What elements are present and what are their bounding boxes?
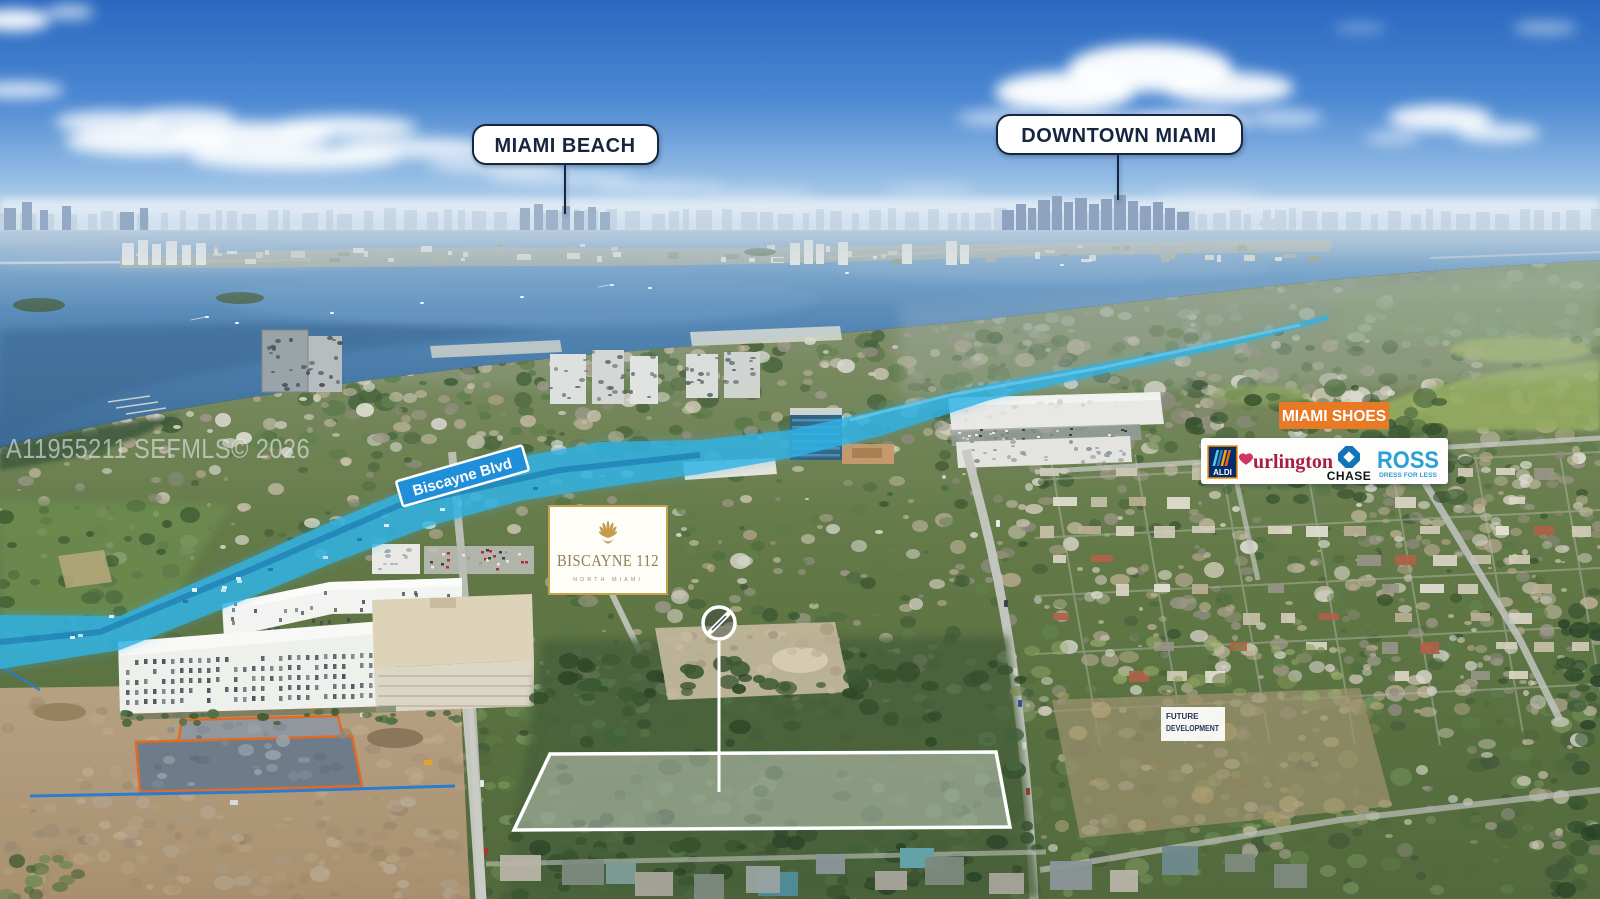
svg-text:A11955211 SEFMLS© 2026: A11955211 SEFMLS© 2026 — [6, 433, 310, 464]
svg-text:DRESS FOR LESS: DRESS FOR LESS — [1379, 472, 1438, 479]
svg-text:ALDI: ALDI — [1213, 468, 1232, 477]
svg-text:MIAMI BEACH: MIAMI BEACH — [494, 135, 635, 157]
svg-text:BISCAYNE 112: BISCAYNE 112 — [557, 551, 659, 570]
svg-text:NORTH MIAMI: NORTH MIAMI — [573, 577, 643, 583]
svg-text:ROSS: ROSS — [1377, 447, 1439, 474]
svg-text:urlington: urlington — [1253, 451, 1333, 473]
svg-text:CHASE: CHASE — [1327, 469, 1372, 483]
svg-text:DEVELOPMENT: DEVELOPMENT — [1166, 724, 1219, 733]
svg-text:FUTURE: FUTURE — [1166, 712, 1199, 721]
svg-text:DOWNTOWN MIAMI: DOWNTOWN MIAMI — [1021, 125, 1217, 147]
svg-text:MIAMI SHOES: MIAMI SHOES — [1282, 408, 1386, 425]
